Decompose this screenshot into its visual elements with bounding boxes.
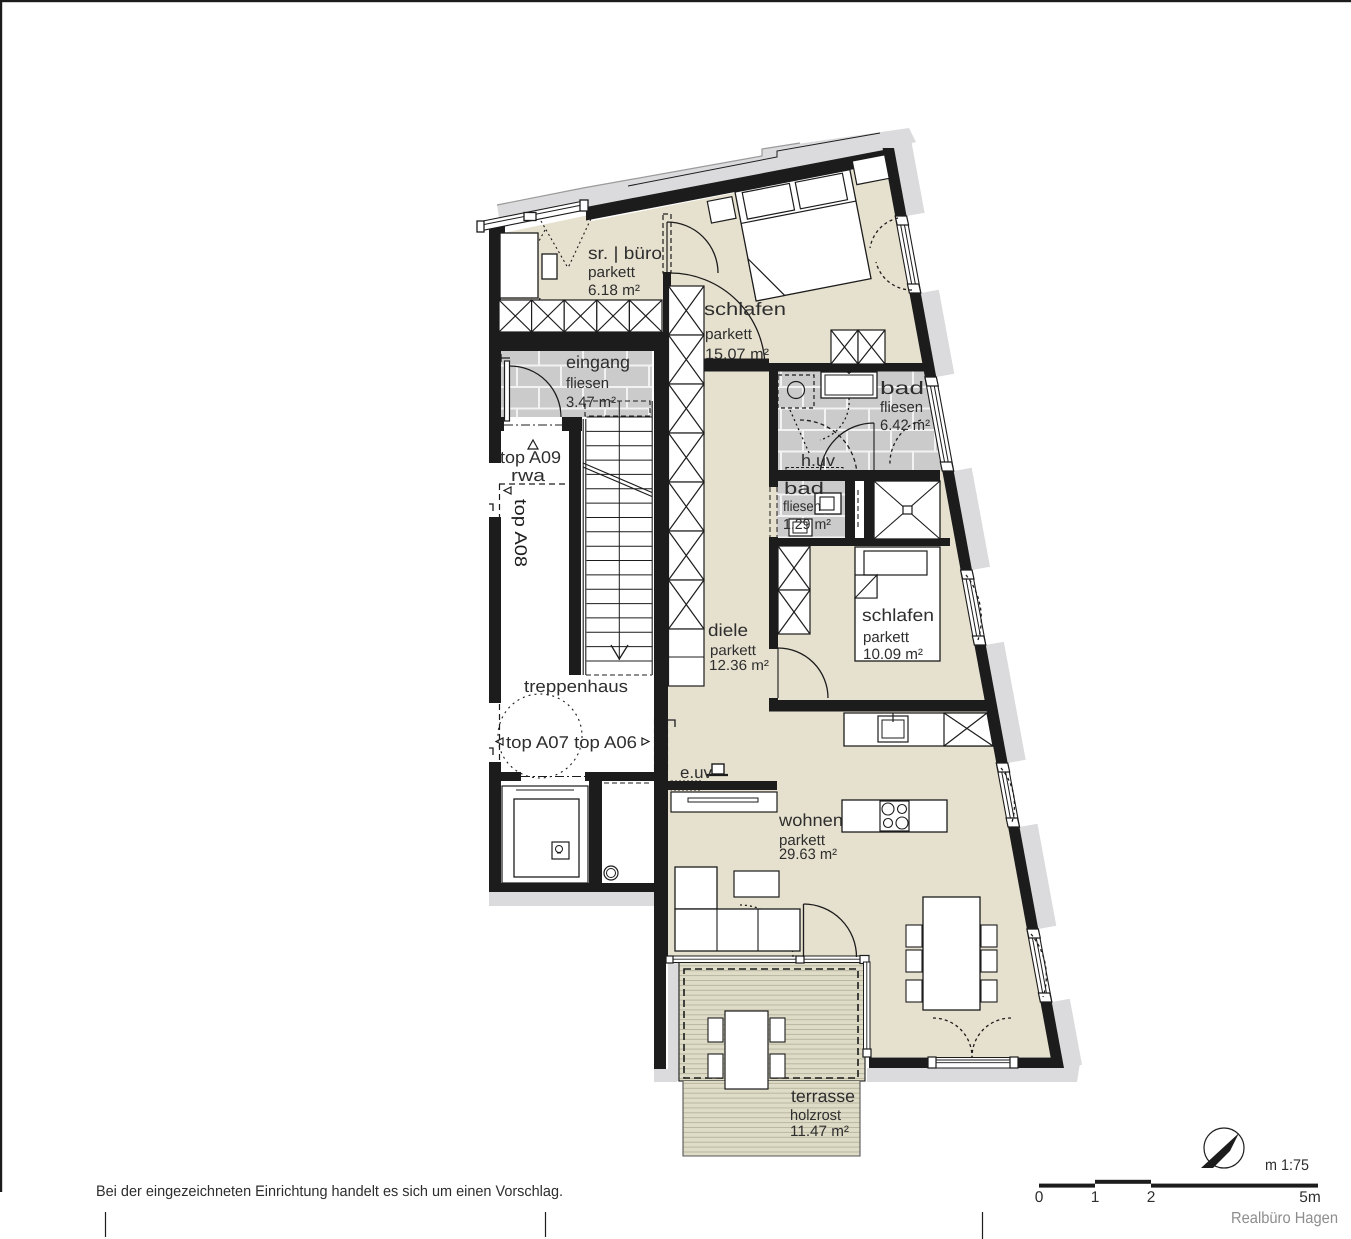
svg-text:holzrost: holzrost bbox=[790, 1107, 842, 1124]
svg-text:diele: diele bbox=[708, 620, 748, 640]
svg-text:parkett: parkett bbox=[588, 264, 636, 281]
svg-text:12.36 m²: 12.36 m² bbox=[709, 658, 769, 674]
svg-text:fliesen: fliesen bbox=[783, 499, 821, 515]
svg-text:bad: bad bbox=[880, 378, 924, 398]
svg-text:1: 1 bbox=[1091, 1189, 1100, 1206]
svg-text:rwa: rwa bbox=[511, 466, 546, 485]
svg-text:h.uv: h.uv bbox=[801, 452, 836, 470]
svg-text:terrasse: terrasse bbox=[791, 1086, 855, 1106]
svg-text:Realbüro Hagen: Realbüro Hagen bbox=[1231, 1210, 1338, 1227]
svg-text:top A08: top A08 bbox=[511, 499, 530, 567]
svg-text:wohnen: wohnen bbox=[778, 810, 843, 830]
svg-text:fliesen: fliesen bbox=[880, 399, 923, 416]
svg-text:e.uv: e.uv bbox=[680, 764, 713, 782]
svg-text:schlafen: schlafen bbox=[704, 299, 786, 319]
svg-text:eingang: eingang bbox=[566, 352, 630, 372]
svg-text:m 1:75: m 1:75 bbox=[1265, 1157, 1309, 1174]
svg-text:fliesen: fliesen bbox=[566, 375, 609, 392]
svg-text:parkett: parkett bbox=[863, 629, 910, 646]
svg-text:top A09: top A09 bbox=[500, 448, 561, 467]
svg-text:6.18 m²: 6.18 m² bbox=[588, 282, 640, 299]
svg-text:schlafen: schlafen bbox=[862, 605, 934, 625]
svg-text:parkett: parkett bbox=[705, 326, 753, 343]
svg-text:parkett: parkett bbox=[710, 643, 756, 659]
svg-text:15.07 m²: 15.07 m² bbox=[705, 346, 769, 363]
svg-text:1.29 m²: 1.29 m² bbox=[783, 517, 831, 533]
svg-text:top A07 top A06: top A07 top A06 bbox=[506, 733, 637, 752]
svg-text:2: 2 bbox=[1147, 1189, 1156, 1206]
svg-text:29.63 m²: 29.63 m² bbox=[779, 846, 837, 863]
svg-text:0: 0 bbox=[1035, 1189, 1044, 1206]
svg-text:Bei der eingezeichneten Einric: Bei der eingezeichneten Einrichtung hand… bbox=[96, 1183, 563, 1200]
svg-text:6.42 m²: 6.42 m² bbox=[880, 417, 930, 434]
svg-text:bad: bad bbox=[784, 479, 824, 498]
svg-text:10.09 m²: 10.09 m² bbox=[863, 646, 923, 663]
svg-text:3.47 m²: 3.47 m² bbox=[566, 394, 616, 411]
svg-text:11.47 m²: 11.47 m² bbox=[790, 1123, 849, 1140]
svg-text:5m: 5m bbox=[1299, 1189, 1321, 1206]
svg-text:treppenhaus: treppenhaus bbox=[524, 677, 628, 696]
svg-text:sr. | büro: sr. | büro bbox=[588, 243, 662, 263]
